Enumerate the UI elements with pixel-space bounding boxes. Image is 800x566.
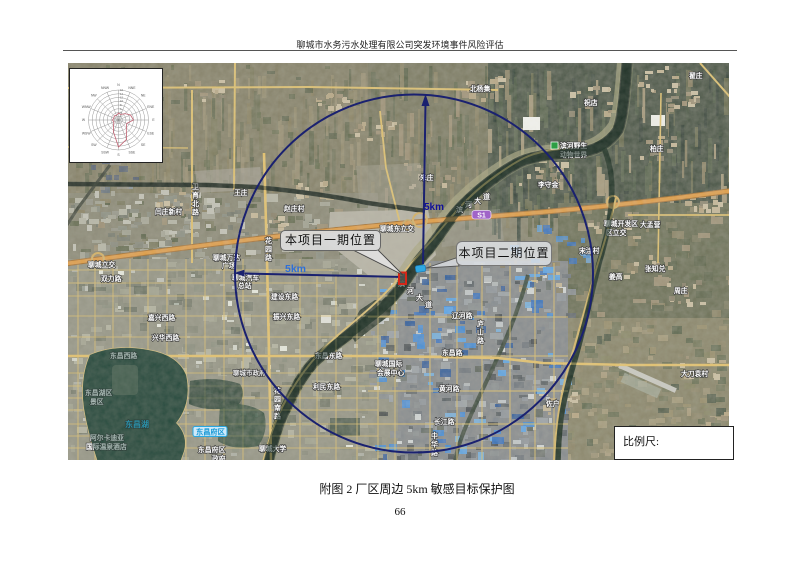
svg-text:广场: 广场 xyxy=(222,261,236,270)
svg-text:华: 华 xyxy=(431,440,438,449)
svg-text:N: N xyxy=(117,83,120,87)
svg-text:总站: 总站 xyxy=(238,281,252,290)
svg-text:10: 10 xyxy=(120,99,124,103)
svg-text:14: 14 xyxy=(120,92,124,96)
svg-text:河: 河 xyxy=(407,286,414,295)
svg-text:SE: SE xyxy=(141,143,146,147)
svg-text:S: S xyxy=(117,153,120,157)
svg-text:园: 园 xyxy=(265,245,272,254)
svg-text:李守金: 李守金 xyxy=(537,180,559,189)
svg-text:利民东路: 利民东路 xyxy=(312,382,340,391)
svg-text:路: 路 xyxy=(477,336,485,345)
svg-text:NNE: NNE xyxy=(128,86,136,90)
svg-text:ESE: ESE xyxy=(147,132,155,136)
svg-text:路: 路 xyxy=(192,208,200,217)
svg-text:NNW: NNW xyxy=(101,86,110,90)
svg-text:SSW: SSW xyxy=(101,151,110,155)
svg-text:育: 育 xyxy=(192,191,199,200)
svg-text:北杨集: 北杨集 xyxy=(470,84,491,93)
svg-text:12: 12 xyxy=(120,96,124,100)
svg-text:长江路: 长江路 xyxy=(434,417,455,426)
svg-text:振兴东路: 振兴东路 xyxy=(273,312,300,321)
svg-text:祝店: 祝店 xyxy=(584,98,598,107)
svg-text:聊城市政府: 聊城市政府 xyxy=(233,368,266,377)
svg-text:道: 道 xyxy=(483,192,490,201)
svg-text:花: 花 xyxy=(265,236,272,245)
svg-text:东昌府区: 东昌府区 xyxy=(196,428,225,437)
svg-text:山: 山 xyxy=(477,328,484,337)
svg-text:5km: 5km xyxy=(424,202,444,213)
svg-text:大: 大 xyxy=(416,293,423,302)
svg-text:8: 8 xyxy=(120,103,122,107)
svg-text:NE: NE xyxy=(141,94,146,98)
svg-text:W: W xyxy=(82,118,86,122)
svg-text:双力路: 双力路 xyxy=(101,274,122,283)
svg-text:大孟营: 大孟营 xyxy=(640,220,661,229)
svg-text:宋洼村: 宋洼村 xyxy=(578,246,600,255)
svg-text:SSE: SSE xyxy=(129,151,137,155)
svg-text:朱庄: 朱庄 xyxy=(420,173,434,182)
svg-text:聊城东立交: 聊城东立交 xyxy=(380,224,414,233)
svg-text:聊城立交: 聊城立交 xyxy=(88,260,115,269)
svg-text:路: 路 xyxy=(265,253,273,262)
svg-text:E: E xyxy=(152,118,155,122)
svg-text:大刀袁村: 大刀袁村 xyxy=(681,369,708,378)
svg-text:S1: S1 xyxy=(477,213,486,220)
svg-text:6: 6 xyxy=(120,107,122,111)
svg-text:周庄: 周庄 xyxy=(674,286,688,295)
svg-text:姜高: 姜高 xyxy=(609,272,623,281)
svg-text:聊城国际: 聊城国际 xyxy=(375,359,402,368)
svg-text:道: 道 xyxy=(425,300,432,309)
svg-text:ENE: ENE xyxy=(147,105,155,109)
svg-text:兴华西路: 兴华西路 xyxy=(152,333,179,342)
svg-text:东昌府区: 东昌府区 xyxy=(198,445,225,454)
svg-text:柏庄: 柏庄 xyxy=(650,144,664,153)
svg-text:WNW: WNW xyxy=(82,105,92,109)
svg-text:赵庄村: 赵庄村 xyxy=(283,204,305,213)
svg-text:5km: 5km xyxy=(285,263,306,275)
svg-text:SW: SW xyxy=(91,143,97,147)
svg-text:翟庄: 翟庄 xyxy=(689,71,703,80)
svg-text:园: 园 xyxy=(274,395,281,404)
svg-text:佐户: 佐户 xyxy=(545,399,560,408)
svg-text:会展中心: 会展中心 xyxy=(377,368,404,377)
svg-text:庐: 庐 xyxy=(477,319,484,328)
svg-text:NW: NW xyxy=(91,94,97,98)
svg-text:张知兑: 张知兑 xyxy=(645,264,666,273)
svg-text:WSW: WSW xyxy=(82,132,91,136)
svg-text:建设东路: 建设东路 xyxy=(270,292,298,301)
svg-text:北: 北 xyxy=(192,199,199,208)
svg-text:王庄: 王庄 xyxy=(234,188,248,197)
svg-text:黄河路: 黄河路 xyxy=(439,384,460,393)
svg-text:16: 16 xyxy=(120,88,124,92)
svg-text:辽河路: 辽河路 xyxy=(452,311,473,320)
svg-text:嘉兴西路: 嘉兴西路 xyxy=(147,313,175,322)
svg-text:闫庄新村: 闫庄新村 xyxy=(155,207,182,216)
svg-text:东昌路: 东昌路 xyxy=(442,348,463,357)
svg-text:中: 中 xyxy=(431,431,438,440)
